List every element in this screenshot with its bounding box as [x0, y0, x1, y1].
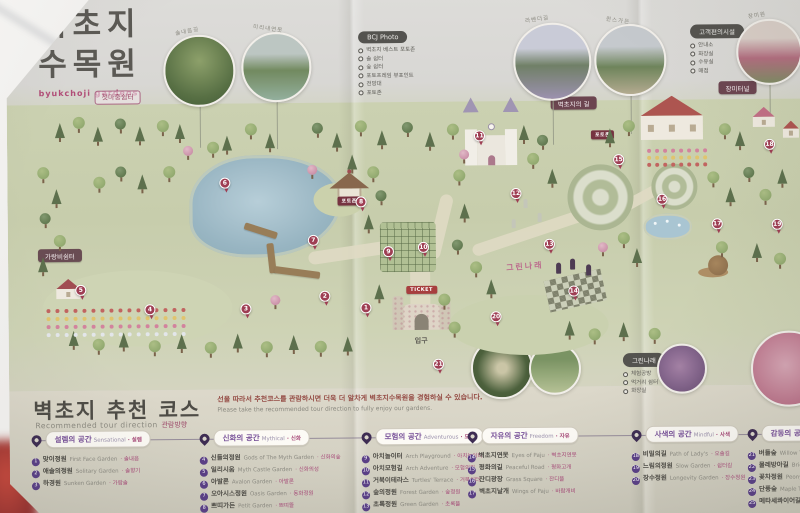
tree [759, 189, 771, 205]
course-column-header: 사색의 공간Mindful· 사색 [631, 425, 745, 443]
map-pin-13: 13 [544, 239, 555, 250]
legend-item-icon [358, 65, 363, 70]
photo-legend-item: 포토존 [359, 88, 455, 97]
tree [375, 190, 386, 205]
flower-dot [101, 317, 105, 321]
course-column-header: 모험의 공간Adventurous· 모험 [361, 427, 483, 445]
tree [777, 169, 787, 188]
legend-item-label: 화장실 [698, 50, 713, 59]
entrance-label: 입구 [415, 336, 428, 346]
facility-legend-title: 고객편의시설 [690, 24, 744, 38]
flower-dot [164, 324, 168, 328]
flower-dot [679, 149, 683, 153]
legend-item-label: 매점 [698, 67, 708, 76]
tree [605, 128, 615, 147]
photo-inset [513, 22, 592, 101]
tree [315, 341, 327, 357]
flower-dot [82, 309, 86, 313]
tree [307, 165, 317, 179]
red-roof-kiosk [783, 121, 799, 138]
tree [623, 120, 635, 136]
flower-dot [703, 148, 707, 152]
map-pin-9: 9 [383, 246, 394, 257]
flower-dot [703, 162, 707, 166]
course-item: 12숲의정원Forest Garden· 숲정원 [362, 486, 484, 499]
tree [149, 340, 161, 356]
flower-dot [83, 333, 87, 337]
tree [527, 153, 539, 169]
flower-dot [687, 156, 691, 160]
photo-inset [241, 32, 312, 103]
course-subtitle-tag: 관람방향 [161, 420, 187, 430]
legend-item-label: 솔 쉼터 [366, 55, 383, 64]
tree [364, 214, 374, 233]
tree [367, 166, 379, 182]
legend-item-label: 수유실 [698, 58, 713, 67]
course-item: 3하경원Sunken Garden· 가람솔 [32, 477, 151, 490]
tree [598, 242, 608, 256]
course-pin-icon [629, 427, 643, 441]
tree [589, 328, 601, 344]
tree [716, 241, 728, 257]
course-column-header: 감동의 공간Touching· 감동 [747, 424, 800, 442]
tree [163, 166, 175, 182]
flower-dot [74, 333, 78, 337]
course-column-1: 설렘의 공간Sensational· 설렘1맞이정원First Face Gar… [32, 430, 152, 490]
course-column-title: 신화의 공간Mythical· 신화 [214, 429, 310, 447]
flower-dot [119, 332, 123, 336]
map-pin-5: 5 [75, 285, 86, 296]
tree [774, 253, 786, 269]
flower-dot [155, 332, 159, 336]
flower-dot [110, 333, 114, 337]
flower-dot [118, 308, 122, 312]
flower-dot [101, 333, 105, 337]
flower-dot [137, 324, 141, 328]
red-roof-house [641, 95, 703, 140]
castle-building [465, 97, 518, 165]
statue [524, 199, 528, 208]
course-pin-icon [30, 433, 44, 447]
tree [38, 257, 48, 276]
tree [459, 149, 469, 163]
flower-dot [182, 316, 186, 320]
fountain-pool [644, 214, 692, 240]
map-pin-7: 7 [308, 235, 319, 246]
map-pin-1: 1 [360, 302, 371, 313]
flower-dot [647, 156, 651, 160]
legend-item-icon [358, 82, 363, 87]
course-column-title: 사색의 공간Mindful· 사색 [645, 425, 739, 443]
flower-dot [46, 309, 50, 313]
legend-item-icon [690, 43, 695, 48]
course-item: 8쁘띠가든Petit Garden· 쁘띠뜰 [200, 500, 341, 513]
flower-dot [182, 332, 186, 336]
flower-dot [647, 163, 651, 167]
flower-dot [56, 317, 60, 321]
legend-item-icon [690, 69, 695, 74]
flower-dot [101, 325, 105, 329]
flower-dot [679, 156, 683, 160]
flower-dot [146, 324, 150, 328]
tree [135, 126, 145, 145]
flower-dot [55, 309, 59, 313]
statue [512, 219, 516, 228]
tree [438, 294, 450, 310]
map-pin-19: 19 [772, 219, 783, 230]
flower-dot [155, 316, 159, 320]
welcome-shelter-badge: 첫마중쉼터 [95, 90, 141, 104]
tree [453, 169, 465, 185]
tree [261, 341, 273, 357]
tree [347, 154, 357, 173]
tree [157, 120, 169, 136]
flower-dot [137, 332, 141, 336]
legend-item-label: 숲 쉼터 [366, 63, 383, 72]
flower-dot [671, 163, 675, 167]
flower-dot [65, 333, 69, 337]
course-column-2: 신화의 공간Mythical· 신화4신들의정원Gods of The Myth… [200, 429, 342, 513]
flower-dot [128, 316, 132, 320]
flower-dot [182, 324, 186, 328]
flower-dot [64, 309, 68, 313]
course-item: 18비밀의길Path of Lady's· 오솔길 [632, 448, 746, 461]
flower-dot [155, 324, 159, 328]
chess-piece [586, 264, 591, 275]
tree [707, 171, 719, 187]
tree [332, 133, 342, 152]
tree [460, 203, 470, 222]
flower-dot [109, 309, 113, 313]
flower-dot [173, 316, 177, 320]
tree [618, 232, 630, 248]
legend-item-label: 전망대 [366, 80, 381, 89]
tree [222, 136, 232, 155]
photo-scene: 벽초지 수목원 byukchoji gardens 첫마중쉼터 벽초지의 길 장… [0, 0, 800, 513]
flower-dot [663, 163, 667, 167]
legend-item-label: 포토존 [367, 89, 382, 98]
course-item: 14벽초지연못Eyes of Paju· 벽초지연못 [468, 450, 579, 463]
photo-legend-title: BCJ Photo [358, 31, 408, 43]
flower-dot [110, 317, 114, 321]
flower-dot [92, 325, 96, 329]
map-pin-16: 16 [656, 194, 667, 205]
legend-item-label: 벽초지 베스트 포토존 [366, 46, 415, 55]
course-item: 22물레방아길Bridge of Turning Mill· 물레길 [748, 459, 800, 472]
tree [752, 243, 762, 262]
legend-item-icon [623, 380, 628, 385]
flower-dot [92, 317, 96, 321]
tree [725, 187, 735, 206]
flower-dot [647, 149, 651, 153]
flower-dot [65, 325, 69, 329]
tree [449, 322, 461, 338]
course-pin-icon [360, 430, 374, 444]
legend-item-icon [690, 60, 695, 65]
course-column-header: 자유의 공간Freedom· 자유 [467, 427, 578, 445]
tree [270, 295, 280, 309]
photo-inset [736, 19, 800, 86]
map-pin-17: 17 [712, 218, 723, 229]
course-column-header: 신화의 공간Mythical· 신화 [200, 429, 341, 447]
flower-dot [671, 149, 675, 153]
chess-piece [556, 263, 561, 274]
tree [183, 146, 193, 160]
map-pin-12: 12 [510, 188, 521, 199]
flower-dot [83, 317, 87, 321]
tree [245, 123, 257, 139]
flower-dot [663, 149, 667, 153]
map-pin-6: 6 [219, 178, 230, 189]
course-pin-icon [198, 431, 212, 445]
tree [470, 261, 482, 277]
course-item: 17벽초지날개Wings of Paju· 바람개비 [468, 486, 579, 499]
tree [93, 177, 105, 193]
flower-dot [146, 332, 150, 336]
flower-dot [56, 333, 60, 337]
flower-dot [164, 316, 168, 320]
photo-legend: BCJ Photo 벽초지 베스트 포토존솔 쉼터숲 쉼터포토프레임 뷰포인트전… [358, 24, 455, 98]
flower-dot [703, 155, 707, 159]
course-column-title: 자유의 공간Freedom· 자유 [481, 427, 578, 445]
flower-dot [687, 163, 691, 167]
tree [40, 213, 51, 228]
course-item: 21버들숲Willow Tree Path· 버들길 [748, 447, 800, 460]
flower-dot [47, 333, 51, 337]
tree [175, 124, 185, 143]
legend-item-icon [690, 52, 695, 57]
flower-dot [173, 332, 177, 336]
legend-item-label: 포토프레임 뷰포인트 [366, 71, 413, 80]
course-item: 13초록정원Green Garden· 초록뜰 [362, 498, 484, 511]
photo-legend-list: 벽초지 베스트 포토존솔 쉼터숲 쉼터포토프레임 뷰포인트전망대포토존 [358, 46, 454, 98]
map-brochure: 벽초지 수목원 byukchoji gardens 첫마중쉼터 벽초지의 길 장… [6, 0, 800, 513]
tree [355, 120, 367, 136]
map-pin-20: 20 [490, 311, 501, 322]
course-column-5: 사색의 공간Mindful· 사색18비밀의길Path of Lady's· 오… [631, 425, 745, 485]
flower-dot [128, 332, 132, 336]
legend-item-label: 안내소 [698, 41, 713, 50]
course-column-3: 모험의 공간Adventurous· 모험9아치놀이터Arch Playgrou… [361, 427, 484, 511]
flower-dot [679, 163, 683, 167]
legend-item-icon [358, 48, 363, 53]
tree [547, 169, 557, 188]
course-subtitle: Recommended tour direction [35, 420, 157, 430]
tree [205, 342, 217, 358]
map-pin-15: 15 [613, 154, 624, 165]
map-pin-4: 4 [144, 304, 155, 315]
course-item: 23꽃차정원Peony Garden· 꽃마당 [748, 471, 800, 484]
tree [452, 240, 463, 255]
legend-item-icon [359, 91, 364, 96]
course-item: 1맞이정원First Face Garden· 솔내음 [32, 453, 151, 466]
tree [312, 123, 323, 138]
chess-piece [570, 259, 575, 270]
flower-dot [56, 325, 60, 329]
flower-dot [74, 325, 78, 329]
course-column-4: 자유의 공간Freedom· 자유14벽초지연못Eyes of Paju· 벽초… [467, 427, 579, 499]
map-pin-8: 8 [355, 196, 366, 207]
tree [735, 131, 745, 150]
course-item: 11거북이테라스Turtles' Terrace· 거북쉼터 [362, 474, 484, 487]
course-item: 2애솔의정원Solitary Garden· 솔향기 [32, 465, 151, 478]
photo-inset [163, 35, 236, 108]
flower-dot [74, 317, 78, 321]
flower-dot [136, 308, 140, 312]
flower-dot [137, 316, 141, 320]
flower-dot [695, 162, 699, 166]
legend-item-icon [358, 57, 363, 62]
course-pin-icon [465, 429, 479, 443]
tree [649, 328, 661, 344]
tree [177, 334, 187, 353]
tree [54, 235, 66, 251]
flower-dot [83, 325, 87, 329]
legend-item-icon [623, 372, 628, 377]
flower-dot [47, 317, 51, 321]
tree [207, 142, 219, 158]
flower-dot [671, 156, 675, 160]
flower-dot [128, 324, 132, 328]
tree [486, 279, 496, 298]
tree [137, 174, 147, 193]
tree [93, 339, 105, 355]
flower-dot [119, 324, 123, 328]
tree [402, 122, 413, 137]
flower-dot [173, 324, 177, 328]
flower-dot [91, 309, 95, 313]
tree [289, 335, 299, 354]
course-item: 19느림의정원Slow Garden· 쉼터길 [632, 460, 746, 473]
tree [447, 124, 459, 140]
tree [719, 123, 731, 139]
flower-dot [163, 308, 167, 312]
tree [537, 135, 548, 150]
flower-dot [655, 163, 659, 167]
tree [374, 284, 384, 303]
flower-dot [73, 309, 77, 313]
flower-dot [695, 155, 699, 159]
flower-dot [655, 156, 659, 160]
course-column-6: 감동의 공간Touching· 감동21버들숲Willow Tree Path·… [747, 424, 800, 508]
tree [51, 189, 61, 208]
rose-tunnel-badge: 장미터널 [718, 81, 756, 94]
tree [377, 130, 387, 149]
title-korean-line2: 수목원 [38, 44, 142, 85]
flower-dot [127, 308, 131, 312]
tree [632, 248, 642, 267]
course-item: 4신들의정원Gods of The Myth Garden· 신화의숲 [200, 452, 341, 465]
course-section: 벽초지 추천 코스 Recommended tour direction 관람방… [9, 385, 800, 513]
course-note-korean: 선을 따라서 추천코스를 관람하시면 더욱 더 알차게 벽초지수목원을 경험하실… [217, 393, 547, 405]
map-pin-21: 21 [433, 359, 444, 370]
course-column-header: 설렘의 공간Sensational· 설렘 [32, 430, 151, 448]
legend-item-label: 체험공방 [631, 370, 651, 379]
pink-roof-hut [753, 107, 775, 127]
course-item: 15평화의길Peaceful Road· 평화고개 [468, 462, 579, 475]
flower-dot [172, 308, 176, 312]
course-item: 16잔디광장Grass Square· 잔디뜰 [468, 474, 579, 487]
course-item: 9아치놀이터Arch Playground· 아치놀이터 [362, 450, 484, 463]
circular-parterre [567, 164, 634, 231]
tree [265, 133, 275, 152]
tree [343, 336, 353, 355]
course-column-title: 설렘의 공간Sensational· 설렘 [46, 430, 151, 448]
tree [37, 167, 49, 183]
course-item: 10아치모험길Arch Adventure· 모험의길 [362, 462, 484, 475]
tree [743, 167, 754, 182]
tree [73, 117, 85, 133]
course-note-english: Please take the recommended tour directi… [217, 404, 547, 414]
course-item: 25메타세콰이어길Metasequoia Road· 메타길 [748, 495, 800, 508]
flower-dot [92, 333, 96, 337]
flower-dot [47, 325, 51, 329]
flower-dot [119, 316, 123, 320]
flower-dot [164, 332, 168, 336]
tree [565, 321, 575, 340]
flower-dot [110, 325, 114, 329]
map-pin-14: 14 [568, 286, 579, 297]
course-item: 24단풍숲Maple Tree Path· 단풍길 [748, 483, 800, 496]
map-pin-11: 11 [474, 130, 485, 141]
legend-item-icon [358, 74, 363, 79]
map-pin-3: 3 [240, 303, 251, 314]
course-pin-icon [745, 426, 759, 440]
tree [619, 322, 629, 341]
flower-dot [695, 148, 699, 152]
snail-sculpture-shell [708, 255, 728, 275]
flower-dot [65, 317, 69, 321]
statue [538, 213, 542, 222]
tree [55, 123, 65, 142]
course-item: 20장수정원Longevity Garden· 장수정원 [632, 472, 746, 485]
tree [115, 166, 126, 181]
tree [93, 127, 103, 146]
flower-dot [181, 308, 185, 312]
ticket-sign: TICKET [406, 286, 437, 294]
tree [519, 125, 529, 144]
map-pin-10: 10 [418, 242, 429, 253]
flower-dot [687, 149, 691, 153]
course-column-title: 감동의 공간Touching· 감동 [761, 424, 800, 442]
map-pin-18: 18 [764, 139, 775, 150]
flower-dot [100, 309, 104, 313]
page-title: 벽초지 수목원 byukchoji gardens [38, 4, 142, 98]
map-pin-2: 2 [319, 291, 330, 302]
flower-dot [655, 149, 659, 153]
flower-dot [663, 156, 667, 160]
tree [233, 333, 243, 352]
tree [425, 132, 435, 151]
tree [115, 118, 126, 133]
photo-inset [594, 24, 667, 97]
